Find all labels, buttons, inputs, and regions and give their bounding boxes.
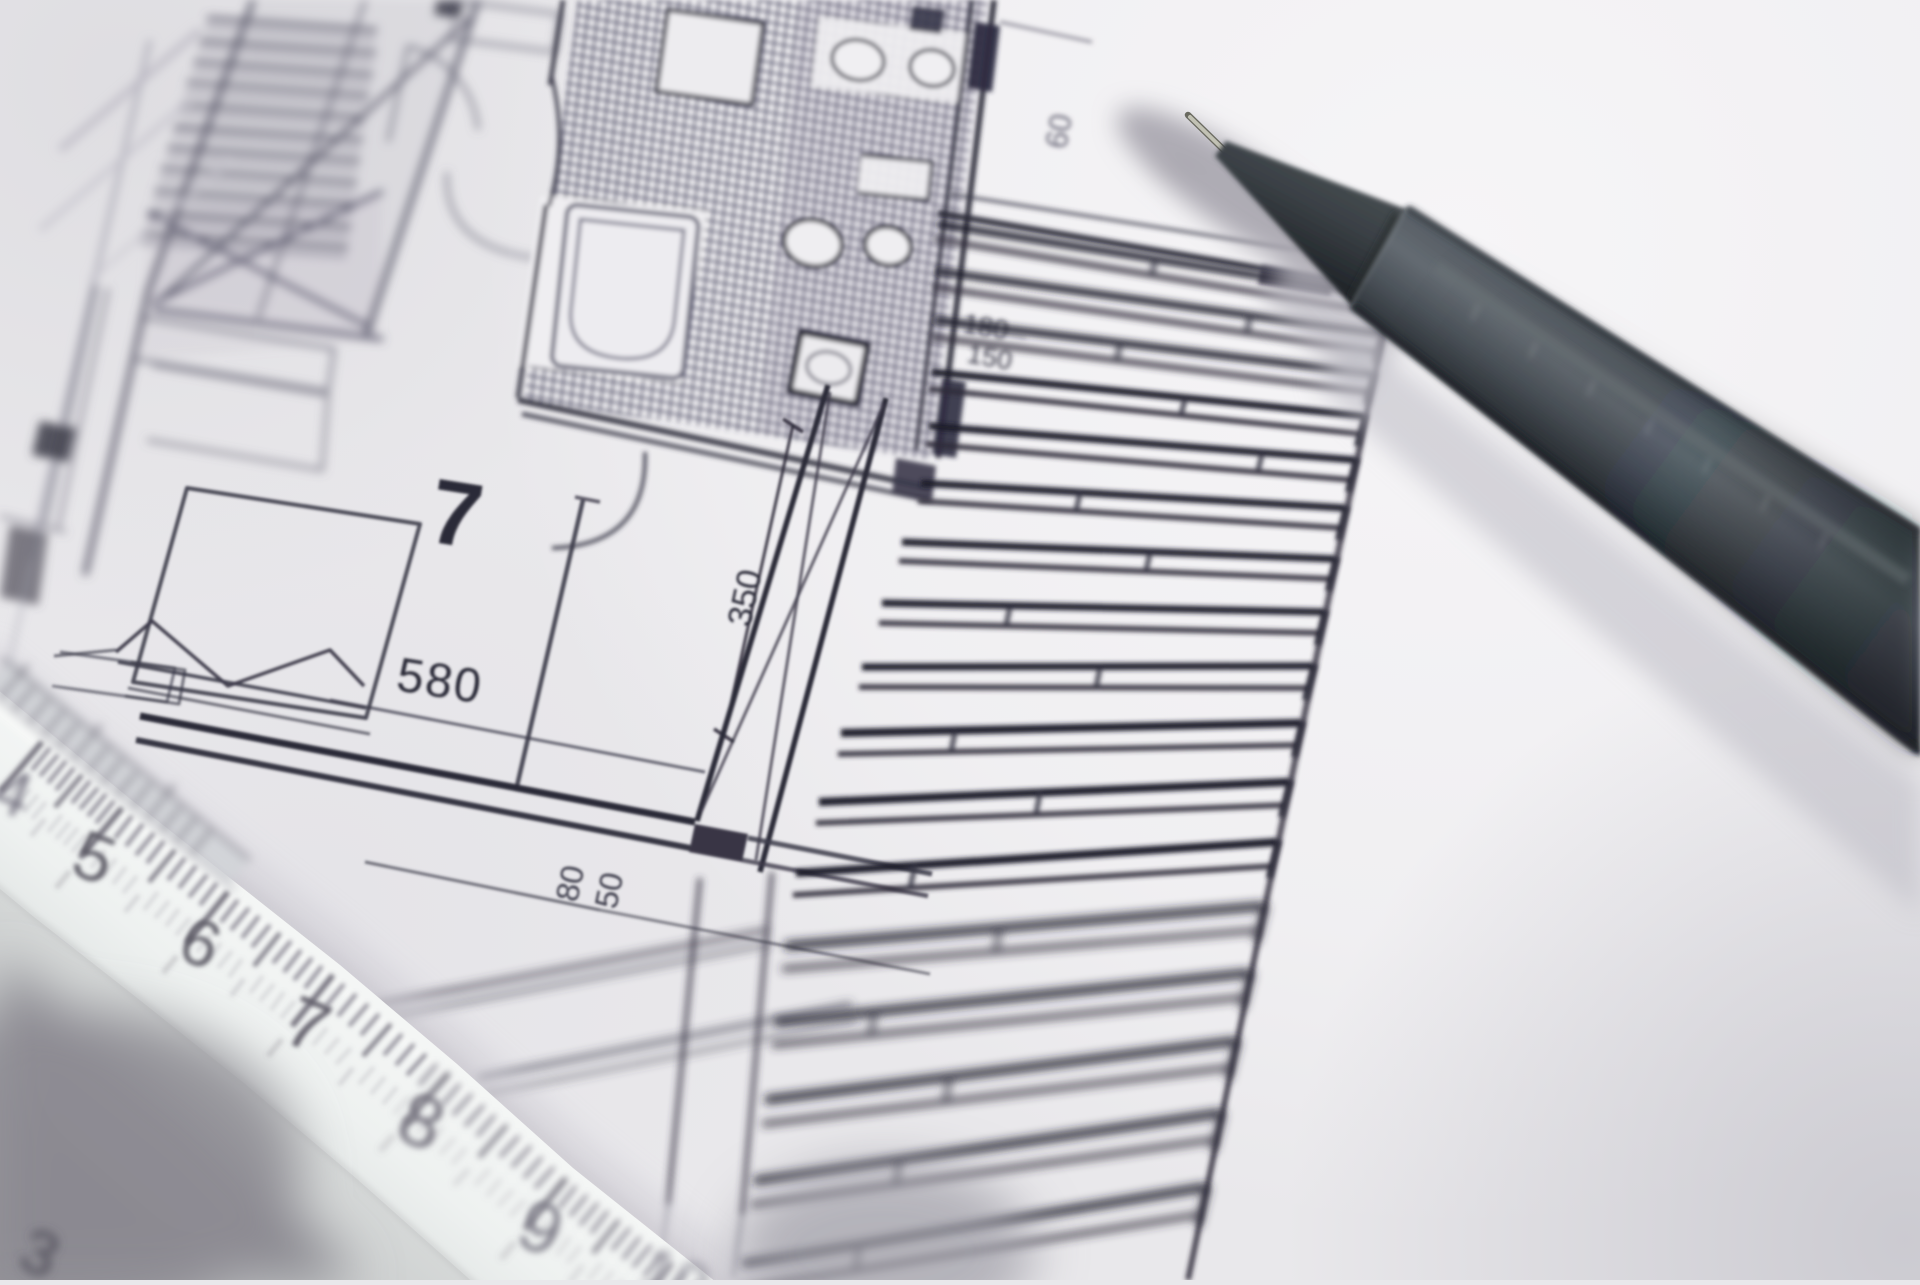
svg-text:60: 60 — [1038, 111, 1078, 151]
svg-text:50: 50 — [588, 869, 631, 911]
svg-text:80: 80 — [549, 862, 592, 904]
